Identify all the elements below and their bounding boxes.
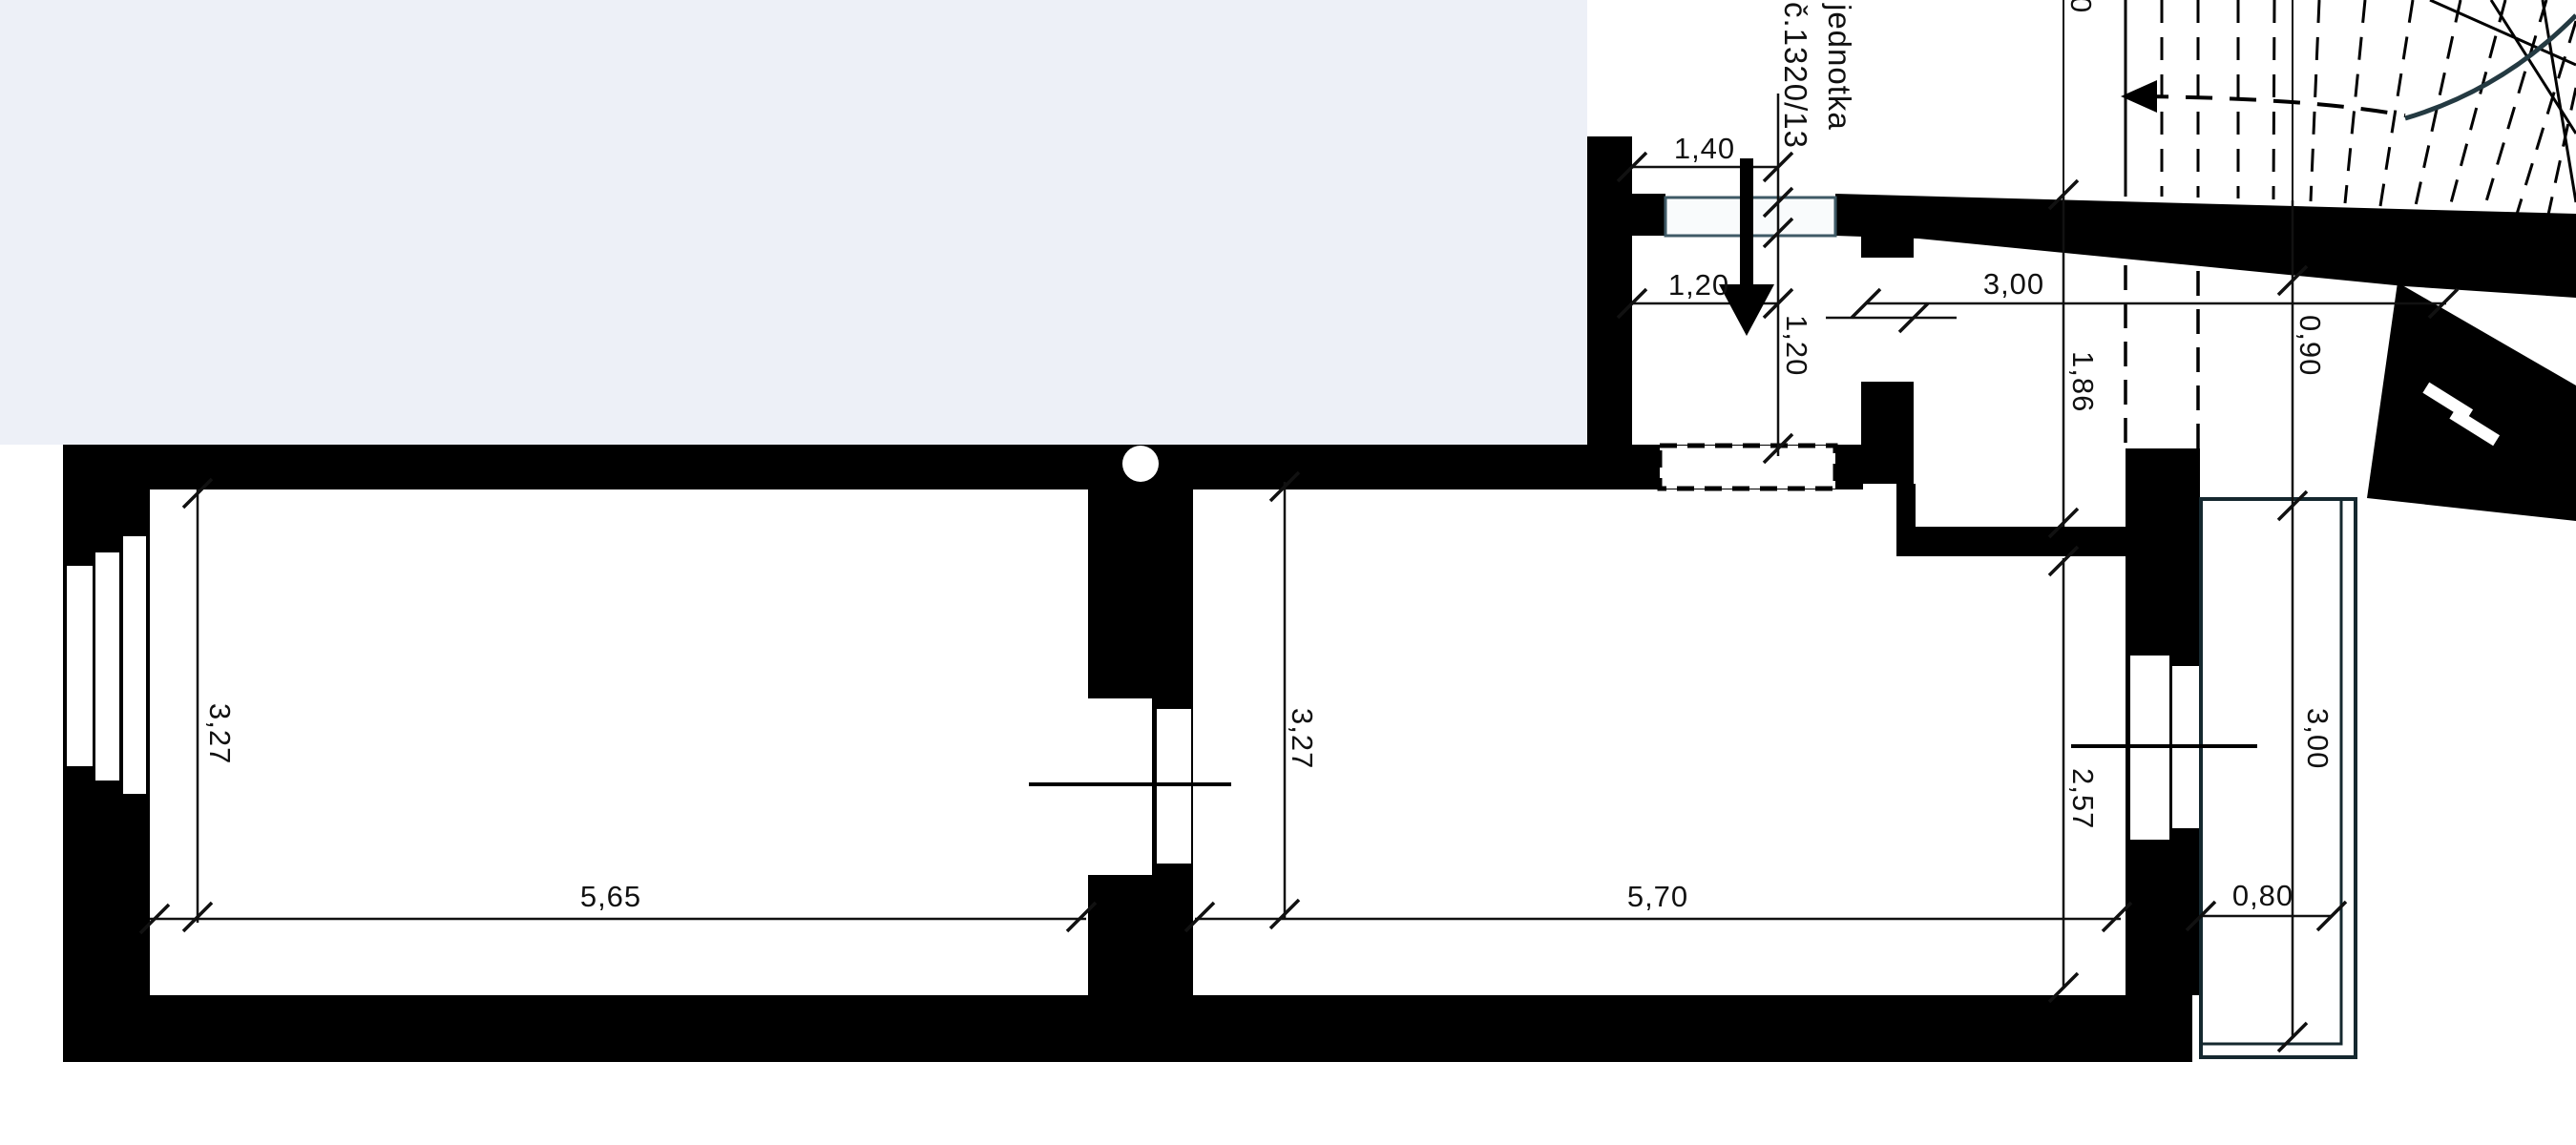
door-middle-left-leaf [1087, 698, 1152, 875]
dim-label-balcony-width: 0,80 [2232, 879, 2293, 912]
dim-label-room-left-length: 5,65 [580, 880, 641, 913]
dim-label-entry-depth: 1,20 [1780, 315, 1813, 376]
window-left-pane-outer [67, 566, 93, 766]
column-marker-icon [1122, 446, 1159, 482]
wall-bottom-exterior [63, 995, 2192, 1062]
dim-label-room-right-depth-right: 2,57 [2066, 768, 2100, 829]
balcony-outline-outer [2201, 499, 2356, 1057]
wall-hall-left-lower [1861, 382, 1914, 484]
entry-threshold-dashed [1660, 446, 1835, 489]
dim-label-balcony-length: 3,00 [2301, 708, 2335, 769]
dim-label-room-right-depth-left: 3,27 [1286, 708, 1319, 769]
wall-hall-bottom-band [1896, 527, 2126, 556]
window-left-pane-middle [95, 552, 119, 781]
dim-label-room-left-depth: 3,27 [203, 703, 237, 764]
adjacent-area-field [0, 0, 1587, 445]
dim-label-entry-clear: 1,20 [1668, 268, 1729, 302]
dim-label-hall-length: 3,00 [1983, 267, 2044, 301]
dim-label-room-right-length: 5,70 [1627, 880, 1688, 913]
dim-label-entry-opening: 1,40 [1674, 132, 1735, 165]
dim-label-hall-width: 1,86 [2066, 351, 2100, 412]
window-left-pane-inner [123, 536, 146, 794]
wall-entry-door-jamb [1632, 194, 1665, 236]
dim-label-partial-top: 0 [2064, 0, 2098, 13]
floor-plan-canvas: 1,40 1,20 3,00 5,65 5,70 0,80 1,20 1,86 … [0, 0, 2576, 1145]
wall-entry-left [1587, 136, 1632, 446]
floor-plan-drawing: 1,40 1,20 3,00 5,65 5,70 0,80 1,20 1,86 … [0, 0, 2576, 1145]
dim-label-landing-width: 0,90 [2293, 315, 2327, 376]
unit-label-line1: jednotka [1822, 3, 1857, 131]
entry-arrow-shaft [1740, 158, 1753, 290]
wall-top [63, 445, 1863, 489]
wall-hall-connector [1896, 484, 1916, 529]
wall-hall-left-upper [1861, 236, 1914, 258]
unit-label-line2: č.1320/13 [1778, 2, 1813, 149]
